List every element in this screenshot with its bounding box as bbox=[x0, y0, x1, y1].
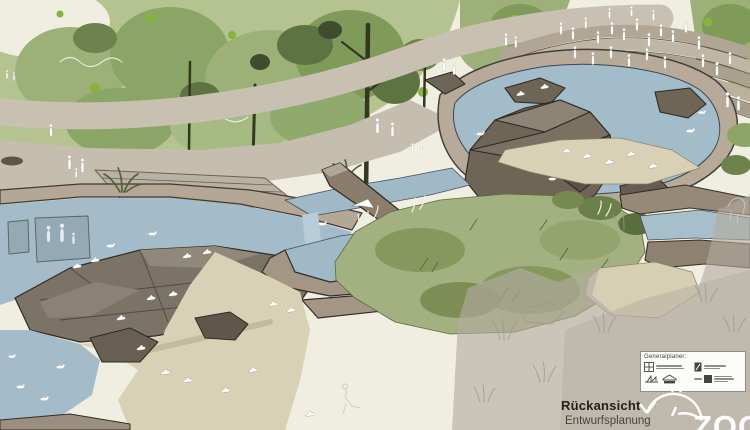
house-banner-logo bbox=[662, 374, 677, 384]
itec-square-logo bbox=[704, 375, 712, 383]
window-grid-logo bbox=[644, 362, 654, 372]
sailboat-logo bbox=[644, 375, 660, 384]
zoo-wordmark: ZOO bbox=[693, 412, 750, 430]
view-label: Rückansicht bbox=[561, 398, 641, 413]
logo-cell-3 bbox=[644, 374, 692, 384]
rendering-canvas: Generalplaner: bbox=[0, 0, 750, 430]
generalplaner-heading: Generalplaner: bbox=[644, 354, 742, 361]
zoo-logo: ZOO bbox=[636, 386, 750, 430]
logo-cell-2 bbox=[694, 362, 742, 372]
zoo-exhibit-illustration bbox=[0, 0, 750, 430]
logo-cell-1 bbox=[644, 362, 692, 372]
door-panel-logo bbox=[694, 362, 702, 372]
logo-cell-4 bbox=[694, 374, 742, 384]
